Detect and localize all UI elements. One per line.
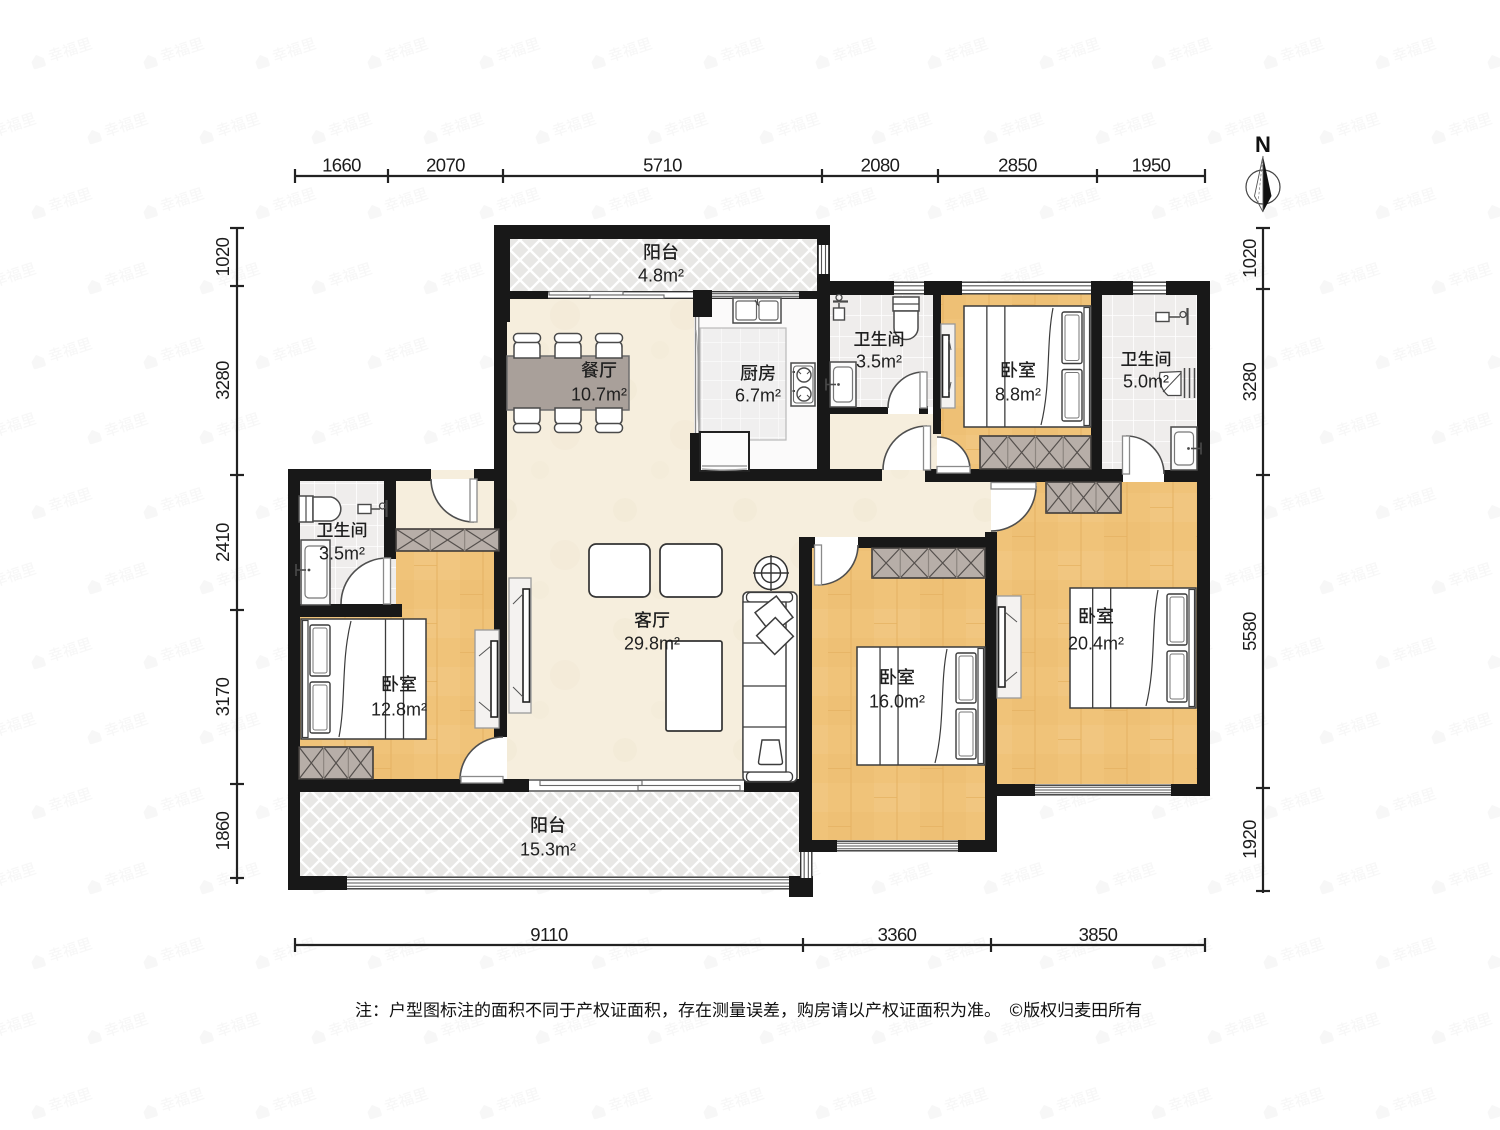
svg-text:1920: 1920 bbox=[1239, 820, 1260, 859]
svg-text:3360: 3360 bbox=[878, 924, 917, 945]
svg-text:3280: 3280 bbox=[1239, 362, 1260, 401]
svg-text:29.8m²: 29.8m² bbox=[624, 634, 680, 654]
svg-text:6.7m²: 6.7m² bbox=[735, 386, 781, 406]
svg-text:15.3m²: 15.3m² bbox=[520, 840, 576, 860]
svg-text:2850: 2850 bbox=[998, 155, 1037, 176]
svg-text:3.5m²: 3.5m² bbox=[319, 544, 365, 564]
svg-text:3170: 3170 bbox=[212, 677, 233, 716]
svg-text:5710: 5710 bbox=[643, 155, 682, 176]
svg-text:10.7m²: 10.7m² bbox=[571, 385, 627, 405]
svg-text:5.0m²: 5.0m² bbox=[1123, 372, 1169, 392]
svg-text:1860: 1860 bbox=[212, 811, 233, 850]
svg-text:1950: 1950 bbox=[1132, 155, 1171, 176]
svg-text:3.5m²: 3.5m² bbox=[856, 352, 902, 372]
svg-text:20.4m²: 20.4m² bbox=[1068, 634, 1124, 654]
svg-text:8.8m²: 8.8m² bbox=[995, 385, 1041, 405]
svg-text:3280: 3280 bbox=[212, 361, 233, 400]
svg-text:16.0m²: 16.0m² bbox=[869, 692, 925, 712]
svg-text:5580: 5580 bbox=[1239, 612, 1260, 651]
svg-text:2070: 2070 bbox=[426, 155, 465, 176]
svg-text:2410: 2410 bbox=[212, 523, 233, 562]
svg-text:2080: 2080 bbox=[861, 155, 900, 176]
svg-text:4.8m²: 4.8m² bbox=[638, 266, 684, 286]
svg-text:1660: 1660 bbox=[322, 155, 361, 176]
svg-text:3850: 3850 bbox=[1079, 924, 1118, 945]
svg-text:1020: 1020 bbox=[1239, 239, 1260, 278]
svg-text:9110: 9110 bbox=[530, 924, 568, 945]
svg-text:N: N bbox=[1255, 132, 1271, 157]
svg-text:1020: 1020 bbox=[212, 237, 233, 276]
svg-text:12.8m²: 12.8m² bbox=[371, 700, 427, 720]
